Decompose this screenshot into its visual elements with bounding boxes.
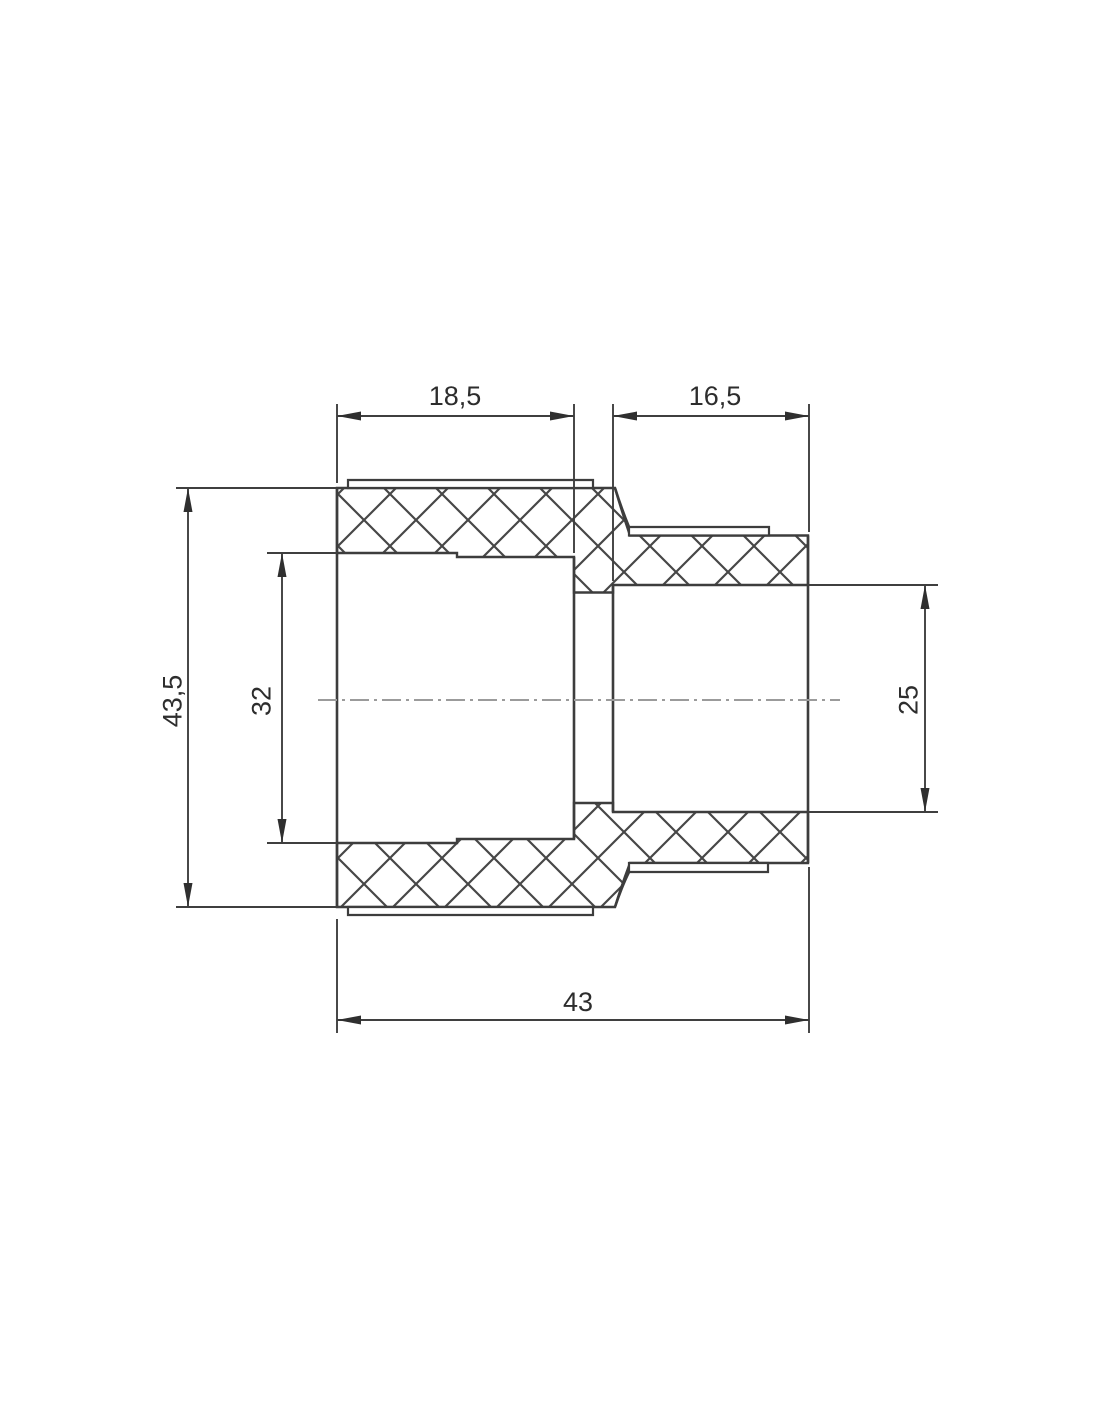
arrowhead-left [337, 412, 361, 421]
dimension-label-43: 43 [563, 987, 593, 1017]
arrowhead-right [785, 412, 809, 421]
fitting-section-drawing: 18,5 16,5 43,5 32 [0, 0, 1100, 1422]
dimension-right-socket-depth: 16,5 [613, 381, 809, 421]
arrowhead-top [278, 553, 287, 577]
dimensions: 18,5 16,5 43,5 32 [157, 381, 938, 1033]
dimension-label-43-5: 43,5 [157, 675, 187, 728]
dimension-label-25: 25 [893, 685, 923, 715]
bottom-right-thread-lip [629, 863, 768, 872]
fitting-cross-section [337, 480, 808, 915]
dimension-left-bore-diameter: 32 [246, 553, 286, 843]
arrowhead-bottom [278, 819, 287, 843]
arrowhead-left [337, 1016, 361, 1025]
dimension-label-16-5: 16,5 [689, 381, 742, 411]
arrowhead-right [550, 412, 574, 421]
top-left-thread-lip [348, 480, 593, 488]
dimension-label-32: 32 [246, 686, 276, 716]
dimension-left-socket-depth: 18,5 [337, 381, 574, 421]
arrowhead-top [921, 585, 930, 609]
arrowhead-bottom [184, 883, 193, 907]
dimension-outer-diameter: 43,5 [157, 488, 192, 907]
arrowhead-left [613, 412, 637, 421]
arrowhead-right [785, 1016, 809, 1025]
dimension-right-bore-diameter: 25 [893, 585, 929, 812]
technical-drawing-canvas: 18,5 16,5 43,5 32 [0, 0, 1100, 1422]
upper-wall-hatched [337, 488, 808, 593]
top-right-thread-lip [629, 527, 769, 536]
arrowhead-top [184, 488, 193, 512]
dimension-label-18-5: 18,5 [429, 381, 482, 411]
arrowhead-bottom [921, 788, 930, 812]
lower-wall-hatched [337, 803, 808, 907]
bottom-left-thread-lip [348, 907, 593, 915]
dimension-overall-length: 43 [337, 987, 809, 1025]
